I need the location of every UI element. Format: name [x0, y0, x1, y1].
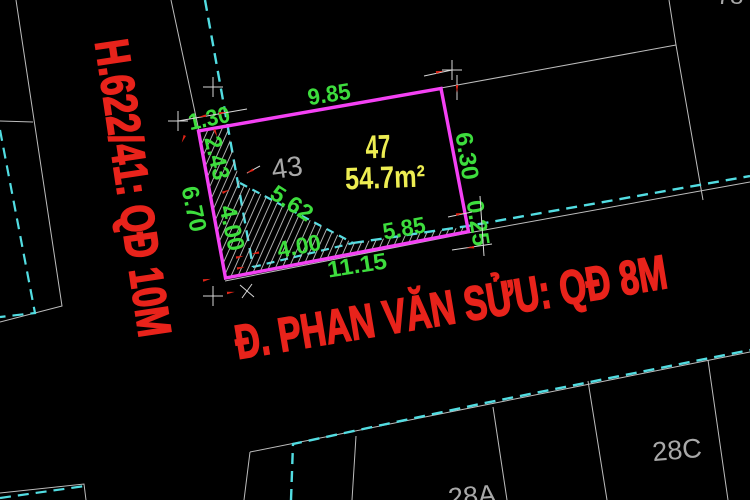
svg-text:28C: 28C	[651, 433, 703, 467]
svg-text:43: 43	[269, 150, 304, 185]
svg-text:28A: 28A	[447, 479, 497, 500]
svg-text:78: 78	[717, 0, 744, 10]
svg-text:54.7m²: 54.7m²	[344, 159, 425, 197]
